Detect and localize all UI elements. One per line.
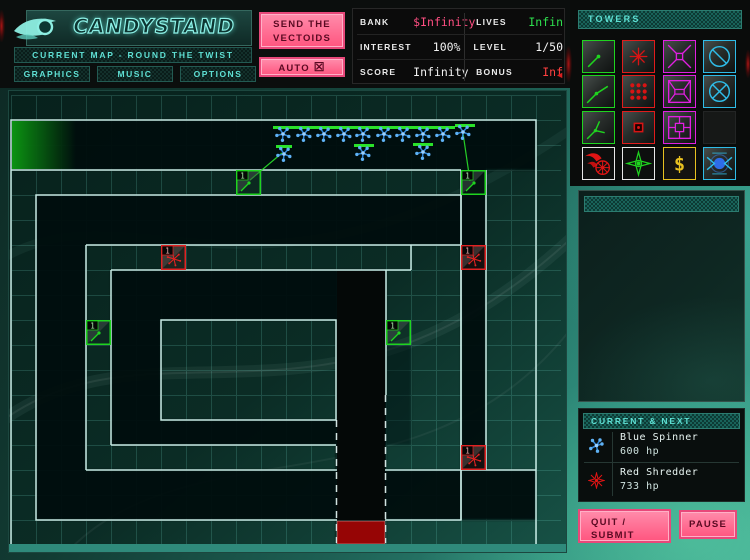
interest-value: 100% [415, 40, 461, 54]
level-value: 1/50 [526, 40, 566, 54]
lives-label: LIVES [463, 17, 527, 27]
blue-orb-icon [704, 148, 735, 179]
background-red-glow [565, 46, 572, 82]
cash-icon: $ [664, 148, 695, 179]
tower-button-magenta-frustum[interactable] [663, 75, 696, 108]
tower-button-red-grid[interactable] [622, 75, 655, 108]
creep-health-bar [455, 124, 475, 127]
cyan-slash-orb-icon [704, 41, 735, 72]
stats-panel: BANK $Infinity LIVES Infin INTEREST 100%… [352, 8, 565, 84]
current-creep-name: Blue Spinner [620, 432, 698, 443]
bonus-arrow-icon: ◄ [555, 70, 564, 80]
map-tower-green[interactable]: 1 [237, 171, 261, 195]
green-refractor-icon [583, 76, 614, 107]
green-splitter-icon [583, 112, 614, 143]
game-window: CANDYSTAND CURRENT MAP - ROUND THE TWIST… [0, 0, 750, 560]
tower-button-cyan-cross-orb[interactable] [703, 75, 736, 108]
send-button-line1: SEND THE [261, 18, 343, 32]
checkbox-checked-icon: ☒ [314, 60, 326, 74]
map-footer-band [8, 544, 567, 553]
tower-button-green-refractor[interactable] [582, 75, 615, 108]
tower-level-badge: 1 [465, 171, 470, 180]
bonus-label: BONUS [463, 67, 527, 77]
creep-health-bar [413, 143, 433, 146]
lives-value: Infin [528, 15, 566, 29]
red-shredder-icon [588, 472, 605, 489]
green-laser-icon [583, 41, 614, 72]
quit-submit-button[interactable]: QUIT / SUBMIT [578, 509, 671, 543]
bank-label: BANK [353, 17, 413, 27]
auto-send-toggle[interactable]: AUTO ☒ [259, 57, 345, 77]
game-map[interactable]: 1111111 [8, 90, 567, 553]
tower-level-badge: 1 [390, 321, 395, 330]
magenta-cell-icon [664, 112, 695, 143]
score-label: SCORE [353, 67, 413, 77]
tower-level-badge: 1 [165, 246, 170, 255]
next-creep-name: Red Shredder [620, 467, 698, 478]
tower-info-panel-header [584, 196, 739, 212]
tower-button-red-core[interactable] [622, 111, 655, 144]
options-button[interactable]: OPTIONS [180, 66, 256, 82]
graphics-button[interactable]: GRAPHICS [14, 66, 90, 82]
map-tower-green[interactable]: 1 [87, 321, 111, 345]
tower-button-magenta-cell[interactable] [663, 111, 696, 144]
tower-button-red-spike[interactable] [622, 40, 655, 73]
tower-button-magenta-pyramid[interactable] [663, 40, 696, 73]
red-core-icon [623, 112, 654, 143]
auto-label: AUTO [278, 63, 310, 74]
center-channel [337, 271, 385, 543]
quit-button-line1: QUIT / [591, 516, 669, 529]
score-value: Infinity [413, 65, 463, 79]
tower-button-blue-orb[interactable] [703, 147, 736, 180]
tower-level-badge: 1 [240, 171, 245, 180]
send-vectoids-button[interactable]: SEND THE VECTOIDS [259, 12, 345, 49]
pause-button[interactable]: PAUSE [679, 510, 737, 539]
next-creep-hp: 733 hp [620, 481, 659, 492]
tower-button-green-laser[interactable] [582, 40, 615, 73]
logo: CANDYSTAND [54, 14, 253, 38]
send-button-line2: VECTOIDS [261, 32, 343, 46]
background-red-glow [0, 10, 5, 42]
towers-panel-title: TOWERS [578, 10, 742, 29]
map-tower-red[interactable]: 1 [462, 246, 486, 270]
tower-button-fire-shard[interactable] [582, 147, 615, 180]
current-next-title: CURRENT & NEXT [583, 413, 740, 429]
stats-divider [464, 13, 465, 81]
tower-level-badge: 1 [465, 246, 470, 255]
fire-shard-icon [583, 148, 614, 179]
blue-spinner-icon [588, 437, 605, 454]
red-spike-icon [623, 41, 654, 72]
map-tower-red[interactable]: 1 [162, 246, 186, 270]
tower-button-green-splitter[interactable] [582, 111, 615, 144]
map-exit [337, 521, 385, 544]
tower-button-empty-slot [703, 111, 736, 144]
creep-health-bar [276, 145, 292, 148]
current-creep-hp: 600 hp [620, 446, 659, 457]
red-grid-icon [623, 76, 654, 107]
dollar-symbol: $ [674, 155, 685, 176]
interest-label: INTEREST [353, 42, 415, 52]
tower-button-green-burst[interactable] [622, 147, 655, 180]
creep-health-bar [354, 144, 374, 147]
cyan-cross-orb-icon [704, 76, 735, 107]
tower-button-cyan-slash-orb[interactable] [703, 40, 736, 73]
current-next-divider [612, 432, 613, 496]
background-red-glow [745, 50, 750, 78]
tower-info-panel [578, 190, 745, 402]
magenta-frustum-icon [664, 76, 695, 107]
tower-level-badge: 1 [90, 321, 95, 330]
music-button[interactable]: MUSIC [97, 66, 173, 82]
level-label: LEVEL [460, 42, 526, 52]
map-tower-green[interactable]: 1 [462, 171, 486, 195]
tower-level-badge: 1 [465, 446, 470, 455]
bank-value: $Infinity [413, 15, 463, 29]
stats-divider [357, 34, 562, 35]
magenta-pyramid-icon [664, 41, 695, 72]
map-tower-red[interactable]: 1 [462, 446, 486, 470]
current-map-label: CURRENT MAP - ROUND THE TWIST [14, 47, 252, 63]
green-burst-icon [623, 148, 654, 179]
map-tower-green[interactable]: 1 [387, 321, 411, 345]
stats-divider [357, 59, 562, 60]
current-next-divider [584, 462, 739, 463]
tower-button-cash[interactable]: $ [663, 147, 696, 180]
quit-button-line2: SUBMIT [591, 529, 669, 542]
map-entrance [12, 121, 76, 169]
